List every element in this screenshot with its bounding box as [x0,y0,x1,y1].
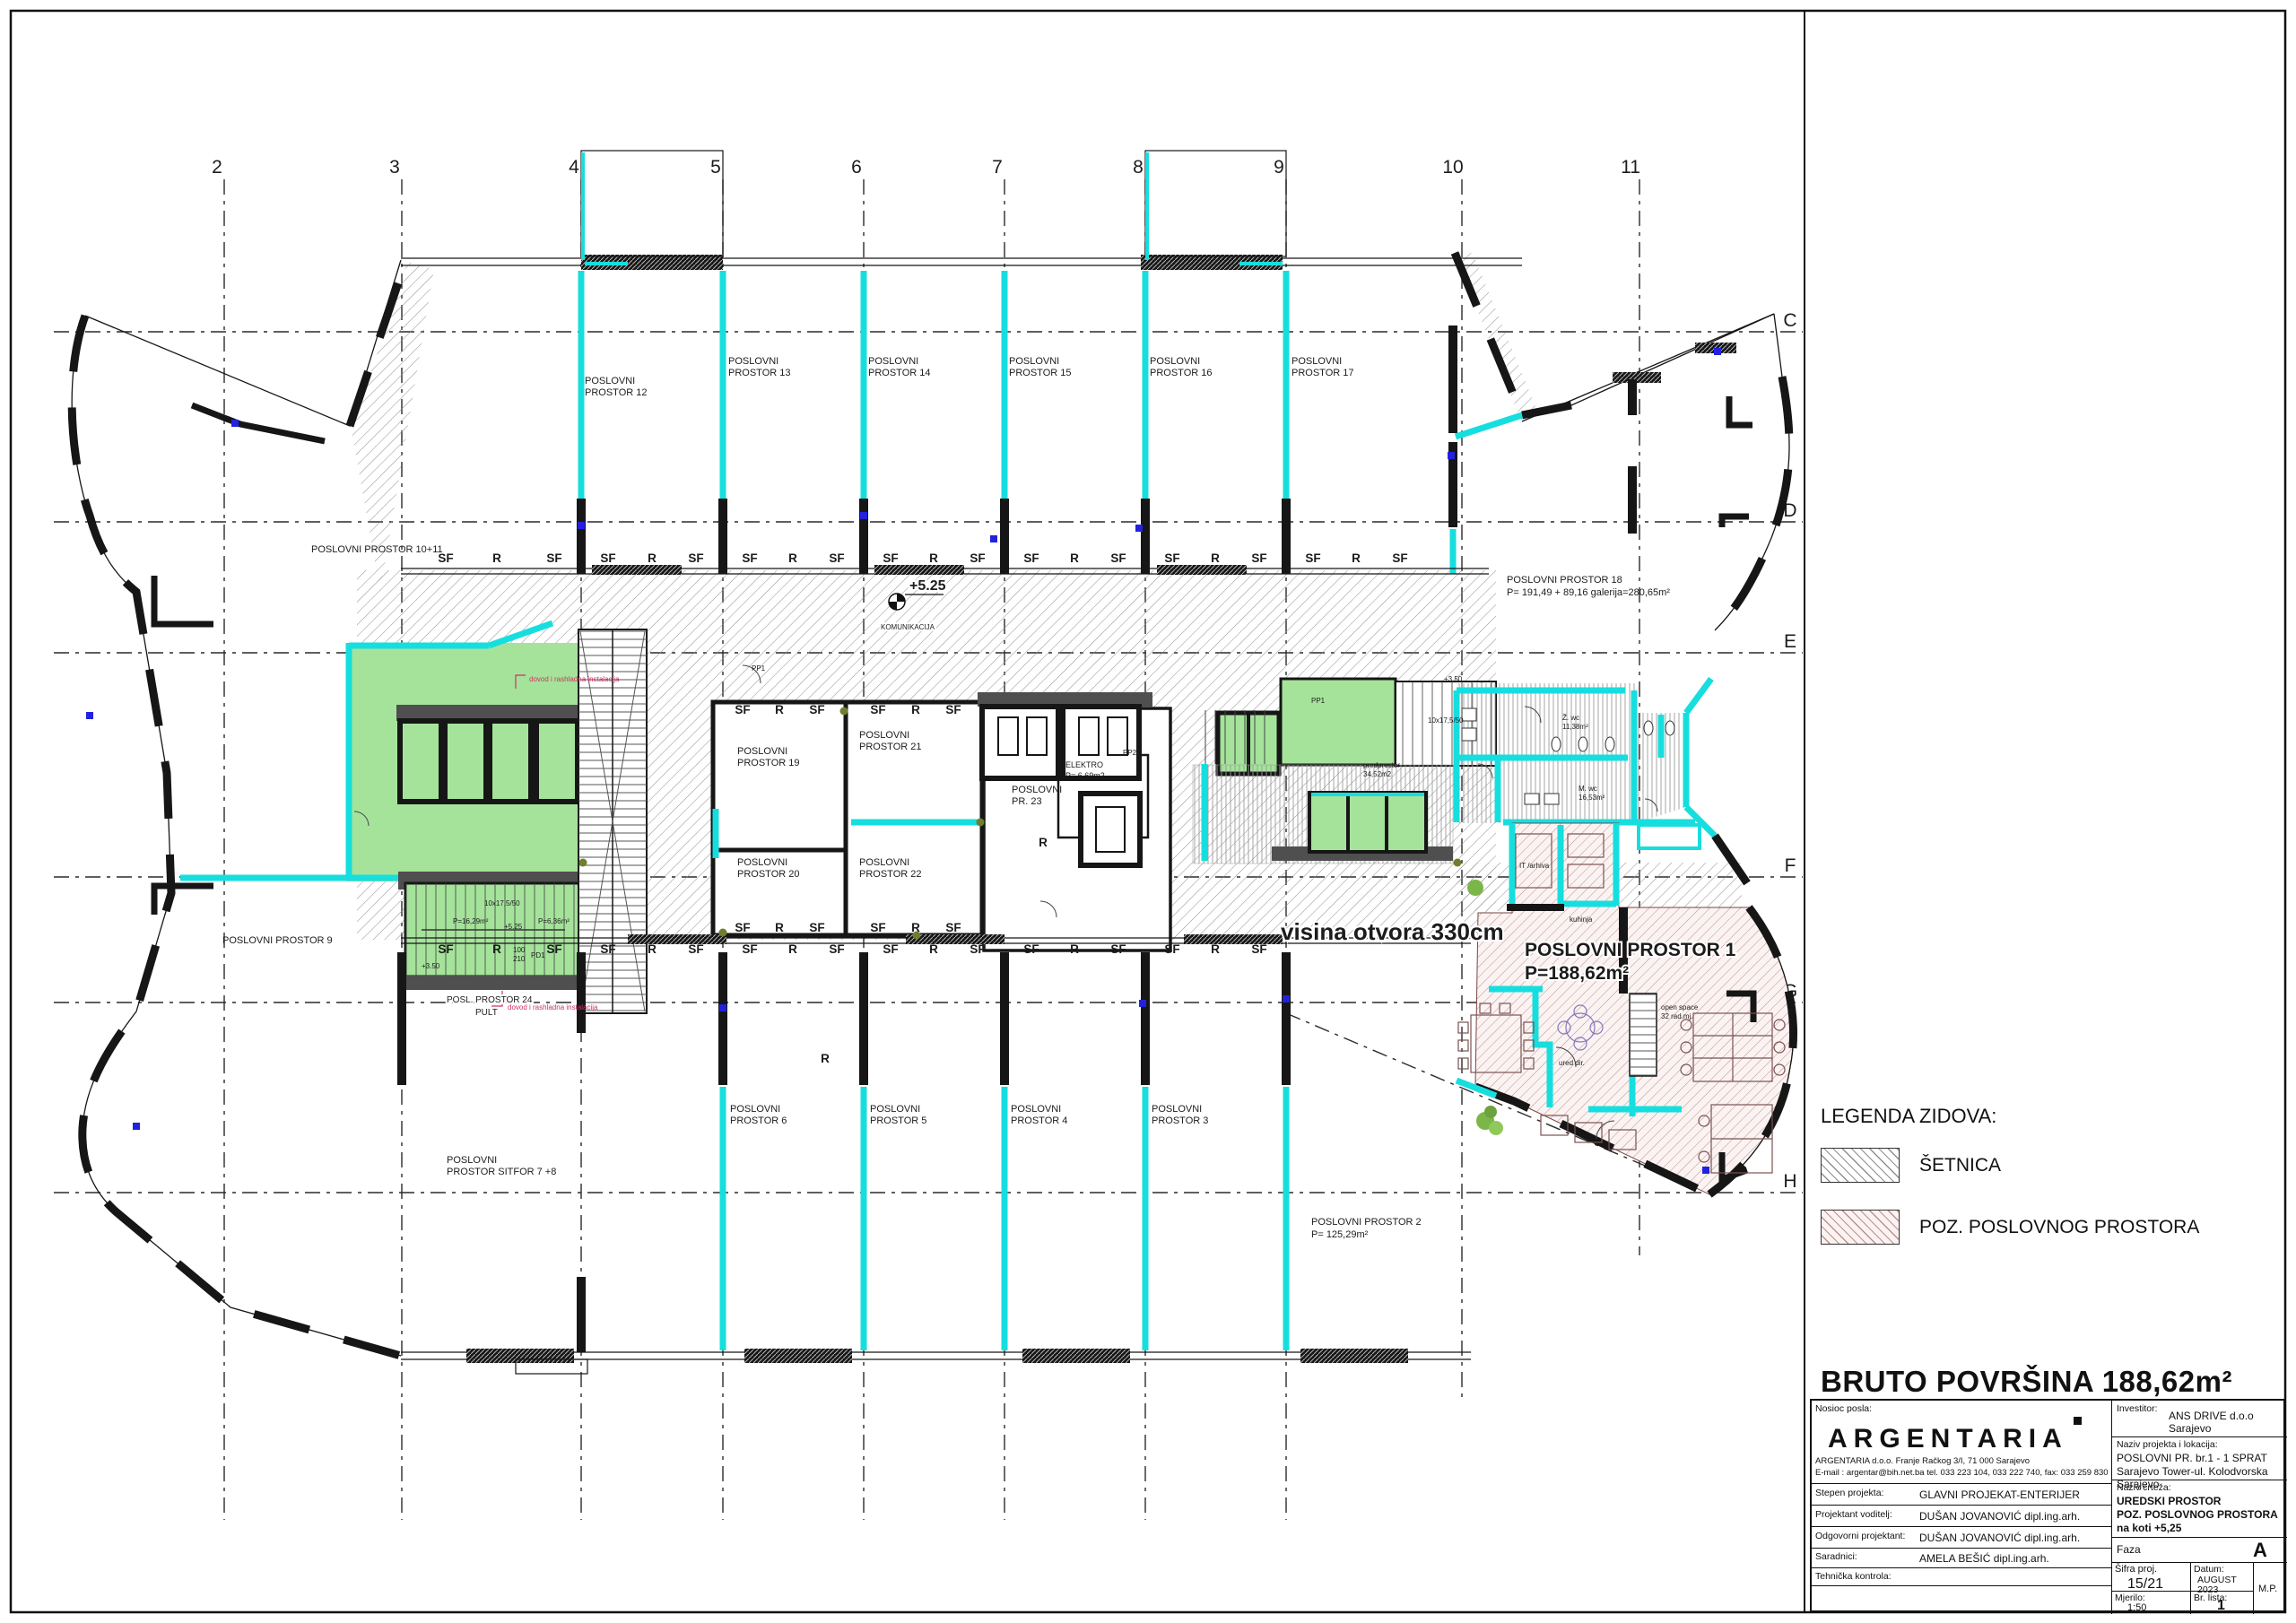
sf-label: SF [870,703,885,716]
room-label-13a: POSLOVNI [728,356,778,367]
room-label-2b: P= 125,29m² [1311,1229,1369,1240]
r-label: R [1070,942,1079,956]
room-label-22a: POSLOVNI [859,857,909,868]
room-label-78b: PROSTOR SITFOR 7 +8 [447,1167,556,1177]
room-label-21a: POSLOVNI [859,730,909,741]
room-label-19b: PROSTOR 19 [737,758,800,768]
room-label-10-11: POSLOVNI PROSTOR 10+11 [311,544,443,555]
r-label: R [911,921,920,934]
r-label: R [1070,551,1079,565]
setnica-label: ŠETNICA [1919,1155,2001,1176]
naziv-value-1: POSLOVNI PR. br.1 - 1 SPRAT [2117,1452,2267,1464]
visina-otvora-label: visina otvora 330cm [1281,918,1504,945]
company-contact: E-mail : argentar@bih.net.ba tel. 033 22… [1815,1468,2109,1478]
room-label-16b: PROSTOR 16 [1150,368,1213,378]
sf-label: SF [970,942,985,956]
saradnici-value: AMELA BEŠIĆ dipl.ing.arh. [1919,1552,2049,1565]
door-tag-pp1b: PP1 [1311,697,1326,705]
drawing-sheet: 2 3 4 5 6 7 8 9 10 11 C D E F G H [0,0,2296,1623]
area-1629-label: P=16,29m² [453,917,489,925]
r-label: R [492,551,501,565]
room-label-9: POSLOVNI PROSTOR 9 [222,935,333,946]
stepen-value: GLAVNI PROJEKAT-ENTERIJER [1919,1488,2080,1501]
sf-label: SF [829,942,844,956]
room-label-12b: PROSTOR 12 [585,387,648,398]
sf-label: SF [870,921,885,934]
r-label: R [648,942,657,956]
mwc-area-label: 16,53m² [1578,794,1605,802]
r-label: R [911,703,920,716]
investitor-label: Investitor: [2117,1403,2158,1414]
grid-col-8: 8 [1133,157,1144,178]
sf-label: SF [945,703,961,716]
crtez-value-1: UREDSKI PROSTOR [2117,1495,2221,1507]
room-label-elektro-a: ELEKTRO [1065,760,1103,769]
sf-label: SF [735,703,750,716]
door-dim-100: 100 [513,946,526,954]
sf-label: SF [1023,942,1039,956]
room-label-13b: PROSTOR 13 [728,368,791,378]
sf-label: SF [742,942,757,956]
grid-col-4: 4 [569,157,579,178]
stair-dim-label-2: 10x17,5/50 [1428,716,1464,725]
sf-label: SF [970,551,985,565]
faza-label: Faza [2117,1543,2141,1556]
kuhinja-label: kuhinja [1570,916,1593,924]
r-label: R [929,551,938,565]
odgovorni-label: Odgovorni projektant: [1815,1531,1905,1541]
sf-label: SF [1023,551,1039,565]
sf-label: SF [438,942,453,956]
level-350-label: +3.50 [422,962,440,970]
room-label-14a: POSLOVNI [868,356,918,367]
voditelj-label: Projektant voditelj: [1815,1509,1892,1520]
room-label-6a: POSLOVNI [730,1104,780,1115]
room-label-6b: PROSTOR 6 [730,1115,787,1126]
room-label-17b: PROSTOR 17 [1291,368,1354,378]
room-label-20a: POSLOVNI [737,857,787,868]
r-label: R [775,921,784,934]
naziv-label: Naziv projekta i lokacija: [2117,1439,2218,1450]
room-label-78a: POSLOVNI [447,1155,497,1166]
room-label-21b: PROSTOR 21 [859,742,922,752]
room-label-1a: POSLOVNI PROSTOR 1 [1525,940,1736,960]
room-label-20b: PROSTOR 20 [737,869,800,880]
room-label-17a: POSLOVNI [1291,356,1342,367]
lista-value: 1 [2217,1598,2225,1614]
sf-label: SF [809,921,824,934]
grid-col-5: 5 [710,157,721,178]
ured-dir-label: ured dir. [1559,1059,1585,1067]
sf-label: SF [1251,942,1266,956]
sf-label: SF [1164,551,1179,565]
crtez-value-2: POZ. POSLOVNOG PROSTORA [2117,1508,2278,1521]
sf-label: SF [829,551,844,565]
grid-col-3: 3 [389,157,400,178]
mjerilo-value: 1:50 [2127,1602,2146,1613]
room-label-18a: POSLOVNI PROSTOR 18 [1507,575,1622,586]
r-label: R [1039,836,1048,849]
room-label-elektro-b: P= 6,69m2 [1065,771,1105,780]
dovod-label-2: dovod i rashladna instalacija [508,1003,598,1011]
room-label-22b: PROSTOR 22 [859,869,922,880]
r-label: R [788,551,797,565]
company-address: ARGENTARIA d.o.o. Franje Račkog 3/I, 71 … [1815,1456,2030,1466]
sf-label: SF [883,942,898,956]
poslovni-label: POZ. POSLOVNOG PROSTORA [1919,1217,2199,1238]
sf-label: SF [546,942,561,956]
zwc-area-label: 11,38m² [1562,723,1588,731]
grid-col-6: 6 [851,157,862,178]
room-label-5a: POSLOVNI [870,1104,920,1115]
stair-dim-label-1: 10x17,5/50 [484,899,520,907]
mp-label: M.P. [2258,1584,2277,1594]
room-label-3b: PROSTOR 3 [1152,1115,1208,1126]
saradnici-label: Saradnici: [1815,1551,1857,1562]
grid-row-f: F [1785,855,1796,876]
legend-title: LEGENDA ZIDOVA: [1821,1105,2269,1128]
door-tag-pp2: PP2 [1123,749,1137,757]
grid-col-10: 10 [1442,157,1463,178]
r-label: R [492,942,501,956]
room-label-4a: POSLOVNI [1011,1104,1061,1115]
poslovni-swatch [1821,1210,1900,1245]
grid-col-7: 7 [992,157,1003,178]
door-tag-pd1: PD1 [531,951,545,959]
room-label-23b: PR. 23 [1012,796,1042,807]
legend-item-poslovni: POZ. POSLOVNOG PROSTORA [1821,1210,2269,1245]
voditelj-value: DUŠAN JOVANOVIĆ dipl.ing.arh. [1919,1510,2080,1523]
grid-col-9: 9 [1274,157,1284,178]
sf-label: SF [883,551,898,565]
door-dim-210: 210 [513,955,526,963]
room-label-15b: PROSTOR 15 [1009,368,1072,378]
room-label-23a: POSLOVNI [1012,785,1062,795]
room-label-1b: P=188,62m² [1525,963,1629,984]
room-label-18b: P= 191,49 + 89,16 galerija=280,65m² [1507,587,1670,598]
predprostor-label: predprostor [1363,761,1400,769]
r-label: R [1352,551,1361,565]
openspace-label-b: 32 rad.mj. [1661,1012,1693,1020]
investitor-value: ANS DRIVE d.o.o Sarajevo [2169,1410,2283,1435]
room-label-24b: PULT [475,1008,498,1018]
sf-label: SF [688,551,703,565]
sf-label: SF [1305,551,1320,565]
grid-row-h: H [1783,1171,1796,1192]
komunikacija-label: KOMUNIKACIJA [881,623,935,631]
sf-label: SF [742,551,757,565]
r-label: R [775,703,784,716]
level-525b-label: +5.25 [504,923,523,931]
kontrola-label: Tehnička kontrola: [1815,1571,1892,1582]
level-350b-label: +3.50 [1444,675,1463,683]
odgovorni-value: DUŠAN JOVANOVIĆ dipl.ing.arh. [1919,1532,2080,1544]
room-label-4b: PROSTOR 4 [1011,1115,1067,1126]
title-block: Nosioc posla: ARGENTARIA ARGENTARIA d.o.… [1810,1399,2285,1612]
room-label-3a: POSLOVNI [1152,1104,1202,1115]
r-label: R [1211,942,1220,956]
predprostor-area-label: 34,52m2 [1363,770,1392,778]
sf-label: SF [1164,942,1179,956]
sf-label: SF [688,942,703,956]
company-logo: ARGENTARIA [1828,1424,2068,1454]
r-label: R [648,551,657,565]
grid-row-c: C [1783,310,1796,331]
setnica-swatch [1821,1148,1900,1183]
r-label: R [788,942,797,956]
grid-row-e: E [1784,631,1796,652]
sf-label: SF [438,551,453,565]
sheet-title: BRUTO POVRŠINA 188,62m² [1821,1365,2232,1399]
sf-label: SF [600,551,615,565]
company-name: ARGENTARIA [1828,1424,2068,1454]
zwc-label: Ž. wc [1562,714,1579,722]
room-label-14b: PROSTOR 14 [868,368,931,378]
nosioc-label: Nosioc posla: [1815,1403,1872,1414]
legend-item-setnica: ŠETNICA [1821,1148,2269,1183]
room-label-12a: POSLOVNI [585,376,635,386]
sifra-label: Šifra proj. [2115,1564,2157,1575]
sf-label: SF [1251,551,1266,565]
openspace-label-a: open space [1661,1003,1699,1011]
crtez-label: Naziv crteža: [2117,1482,2171,1493]
sf-label: SF [735,921,750,934]
sf-label: SF [546,551,561,565]
rooms-19-22-block [713,692,1170,950]
room-label-2a: POSLOVNI PROSTOR 2 [1311,1217,1422,1228]
level-525-label: +5.25 [909,578,946,594]
sf-label: SF [1110,551,1126,565]
grid-col-11: 11 [1621,157,1640,178]
r-label: R [1211,551,1220,565]
room-label-19a: POSLOVNI [737,746,787,757]
r-label: R [929,942,938,956]
area-636-label: P=6,36m² [538,917,570,925]
sf-label: SF [600,942,615,956]
r-label: R [821,1052,830,1065]
mwc-label: M. wc [1578,785,1597,793]
crtez-value-3: na koti +5,25 [2117,1522,2181,1534]
sf-label: SF [1110,942,1126,956]
dovod-label-1: dovod i rashladna instalacija [529,675,620,683]
grid-col-2: 2 [212,157,222,178]
faza-value: A [2253,1539,2267,1562]
room-label-5b: PROSTOR 5 [870,1115,926,1126]
room-label-16a: POSLOVNI [1150,356,1200,367]
legend: LEGENDA ZIDOVA: ŠETNICA POZ. POSLOVNOG P… [1821,1105,2269,1271]
stepen-label: Stepen projekta: [1815,1488,1883,1498]
sf-label: SF [1392,551,1407,565]
sf-label: SF [809,703,824,716]
sf-label: SF [945,921,961,934]
arhiva-label: IT /arhiva [1519,862,1550,870]
door-tag-pp1a: PP1 [752,664,766,673]
room-label-15a: POSLOVNI [1009,356,1059,367]
datum-label: Datum: [2194,1564,2224,1575]
